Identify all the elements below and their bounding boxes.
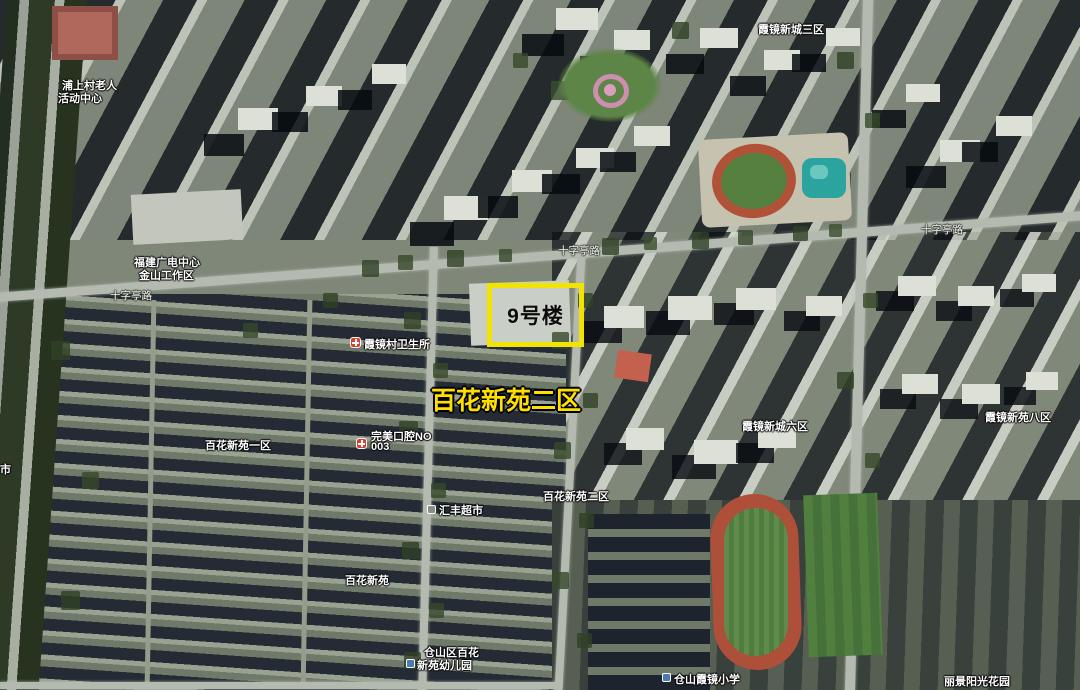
tree-cluster [0,0,1,1]
building-roof [556,8,598,30]
poi-label-supermarket: 汇丰超市 [439,502,483,518]
building-roof [898,276,936,296]
building-roof [372,64,406,84]
building-roof [940,140,980,162]
poi-marker-icon [406,659,415,668]
building-roof [996,116,1032,136]
red-roof-building [614,350,652,382]
community-center-building [52,6,118,60]
building-roof [806,296,842,316]
medical-cross-icon [350,337,361,348]
estate-label-baihua1: 百花新苑一区 [205,437,271,453]
medical-cross-icon [356,438,367,449]
building9-label: 9号楼 [507,300,564,330]
area-annotation-label: 百花新苑二区 [431,381,581,417]
broadcast-center-roof [131,189,243,245]
building9-highlight-box: 9号楼 [487,283,584,347]
sports-field [724,508,788,656]
building-roof [694,440,738,464]
rowhouse-rooftops-texture [0,294,566,690]
building-roof [626,428,664,450]
road-label-shizitinglu-center: 十字亭路 [558,243,600,258]
building-roof [634,126,670,146]
building-roof [604,306,644,328]
poi-label-broadcast-line2: 金山工作区 [139,267,194,283]
park-feature [604,84,616,96]
building-roof [958,286,994,306]
poi-label-primary-school: 仓山霞镜小学 [674,671,740,687]
estate-label-baihua2-small: 百花新苑二区 [543,488,609,504]
building-roof [512,170,552,192]
football-pitch [803,493,883,657]
poi-label-clinic: 霞镜村卫生所 [364,336,430,352]
building-roof [906,84,940,102]
building-roof [1026,372,1058,390]
poi-marker-icon [662,673,671,682]
building-roof [444,196,488,220]
building-roof [962,384,1000,404]
road-label-shizitinglu-west: 十字亭路 [110,288,152,303]
partial-label-left-edge: 市 [0,461,11,477]
satellite-map-canvas[interactable]: 9号楼 百花新苑二区 浦上村老人 活动中心 福建广电中心 金山工作区 十字亭路 … [0,0,1080,690]
building-roof [238,108,278,130]
poi-label-elderly-center-line2: 活动中心 [58,90,102,106]
building-roof [668,296,712,320]
estate-label-east6: 霞镜新城六区 [742,418,808,434]
estate-label-east8: 霞镜新苑八区 [985,409,1051,425]
building-roof [576,148,614,168]
building-roof [614,30,650,50]
building-roof [736,288,776,310]
poi-label-dental-line2: 003 [371,441,389,453]
building-roof [700,28,738,48]
shopping-cart-icon [427,505,436,514]
estate-label-baihua: 百花新苑 [345,572,389,588]
estate-label-southeast: 丽景阳光花园 [944,673,1010,689]
pool-shallow-area [810,165,828,179]
building-roof [764,50,800,70]
poi-label-kindergarten-line2: 新苑幼儿园 [417,657,472,673]
school-buildings-texture [588,514,710,690]
estate-label-northeast: 霞镜新城三区 [758,21,824,37]
building-roof [826,28,860,46]
building-roof [306,86,342,106]
building-roof [1022,274,1056,292]
road-bottom [0,682,560,689]
building-roof [902,374,938,394]
road-label-shizitinglu-east: 十字亭路 [921,222,963,237]
